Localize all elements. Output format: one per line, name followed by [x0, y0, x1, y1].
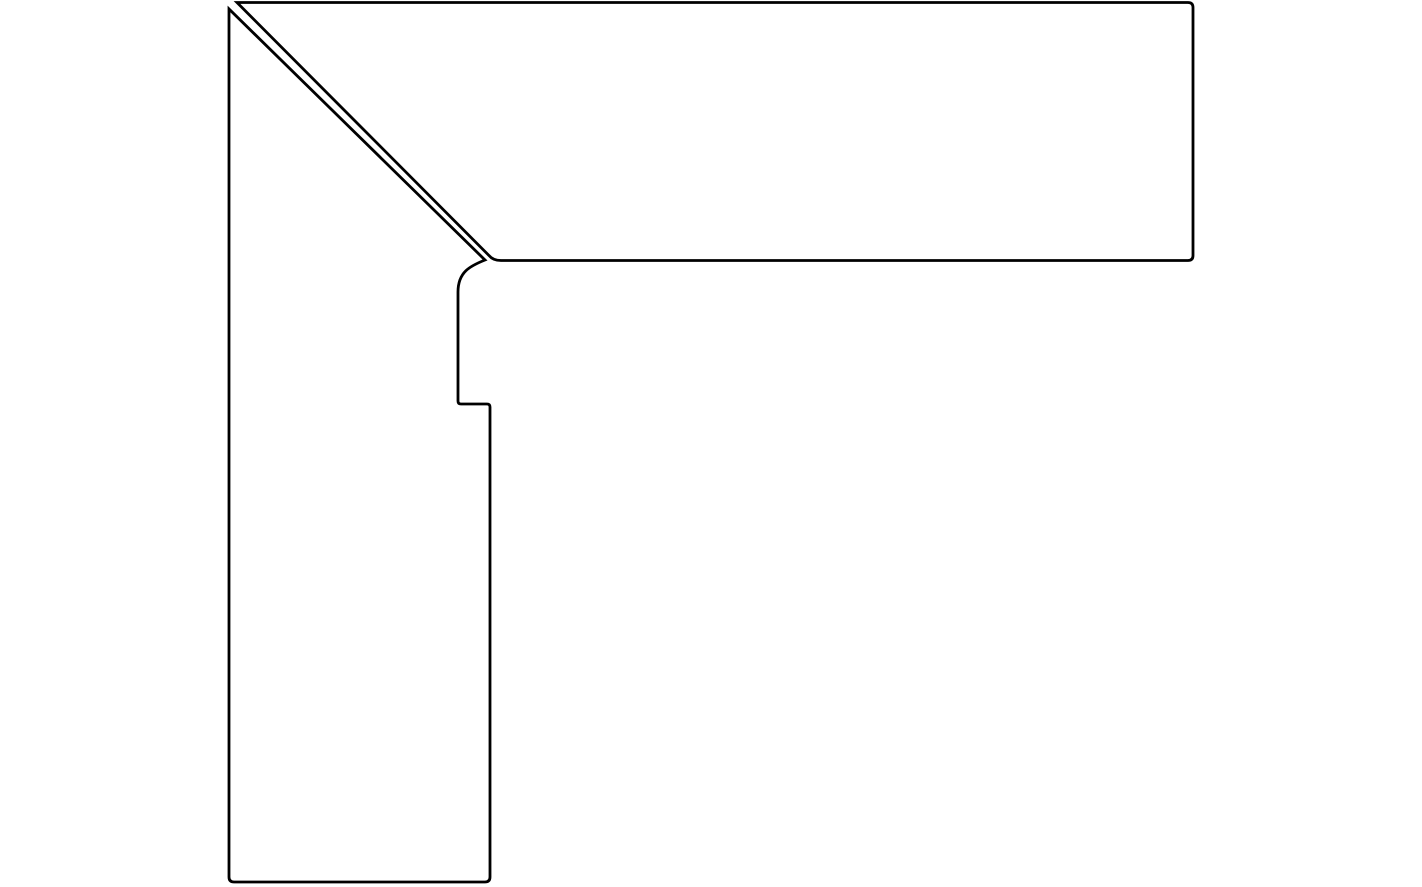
drawing-canvas	[0, 0, 1422, 887]
left-vertical-profile-outline	[229, 9, 490, 882]
top-horizontal-profile-outline	[237, 3, 1193, 261]
mitre-corner-line-drawing	[0, 0, 1422, 887]
